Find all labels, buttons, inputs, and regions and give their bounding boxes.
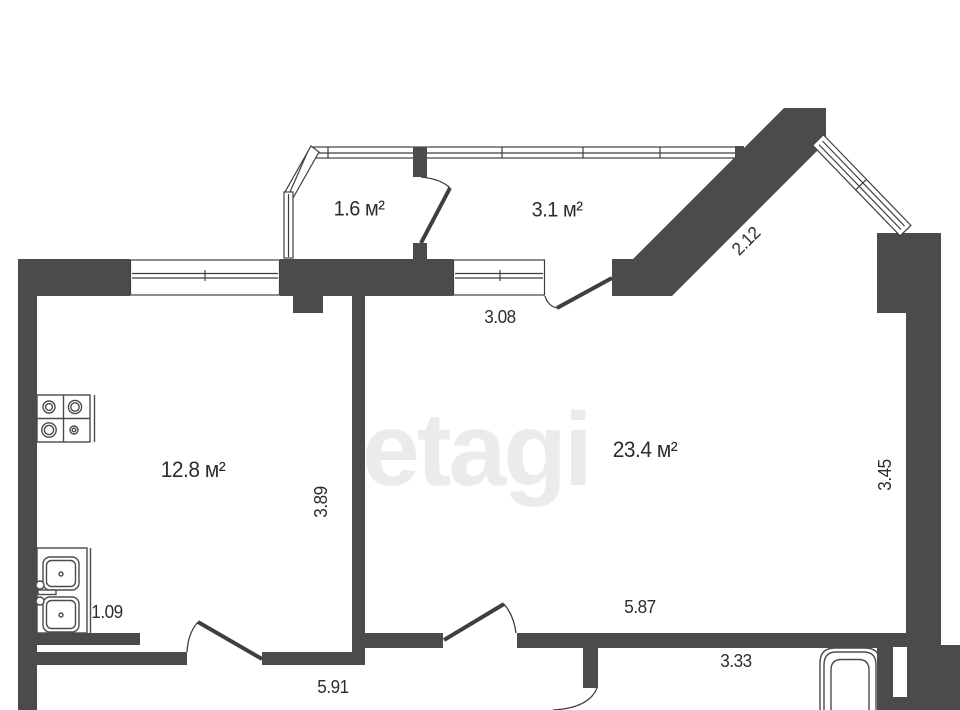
wall-bathroom-block [877,645,960,710]
dimension-label-kitchen-bottom: 5.91 [317,678,348,696]
walls-layer [18,108,960,710]
doors-layer [187,177,612,710]
wall-bottom-living-left [352,633,443,648]
dimension-label-kitchen-height: 3.89 [312,486,330,517]
wall-notch [293,296,323,313]
diagonal-window [813,135,911,236]
balcony-glazing-band [313,147,743,158]
kitchen-window [131,260,280,295]
dimension-label-living-top: 3.08 [484,308,515,326]
balcony-partition-bottom [413,243,427,259]
wall-kitchen-bottom-right [262,652,365,665]
floor-plan-drawing [0,0,960,710]
wall-top-middle [280,259,453,296]
wall-kitchen-bottom-left [18,652,187,665]
wall-top-left [18,259,130,296]
wall-interior-kitchen-living [352,296,365,663]
living-window [454,260,545,295]
balcony-partition-top [413,147,427,177]
wall-niche-slot [893,647,907,697]
wall-kitchen-bottom-inner [37,633,140,645]
room-area-label-balcony-large: 3.1 м² [532,200,583,221]
balcony-corner-glazing [285,146,319,198]
room-area-label-living: 23.4 м² [613,439,677,461]
wall-hall-stub [583,648,598,688]
balcony-left-glazing [284,192,293,258]
dimension-label-living-right: 3.45 [876,459,894,490]
dimension-label-sink-counter: 1.09 [91,603,122,621]
balcony-partition-door [421,177,450,243]
room-area-label-kitchen: 12.8 м² [161,459,225,481]
sink-icon [36,548,91,633]
floor-plan: etagi [0,0,960,710]
wall-exterior-left [18,259,37,710]
dimension-label-bathroom-width: 3.33 [720,652,751,670]
kitchen-door [187,622,262,659]
balcony-band-end-post [735,146,744,159]
room-area-label-balcony-small: 1.6 м² [334,199,385,220]
wall-corner-block [877,233,941,313]
living-room-door [444,604,516,640]
bathtub-icon [820,648,880,710]
hallway-door-arc [553,688,597,710]
balcony-door [545,278,612,308]
stove-icon [37,395,95,442]
dimension-label-living-bottom: 5.87 [624,598,655,616]
wall-diagonal [612,108,826,296]
